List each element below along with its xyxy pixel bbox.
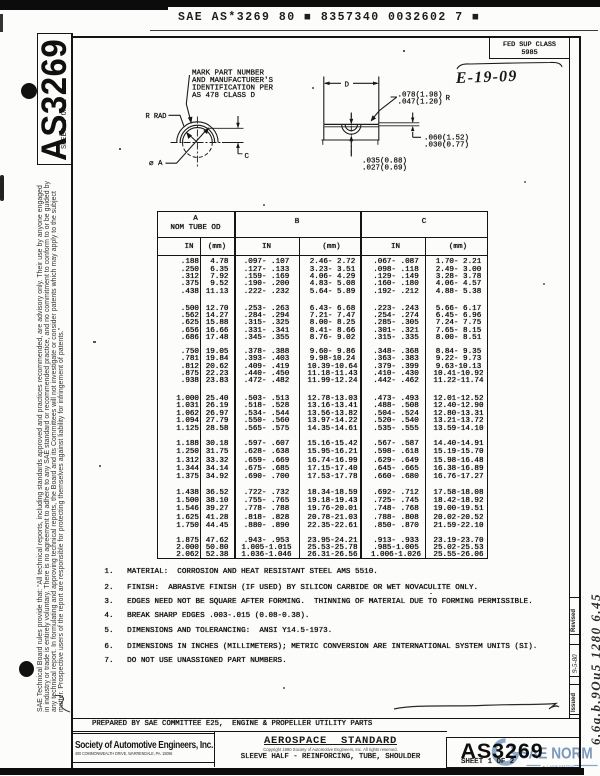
svg-text:R RAD: R RAD xyxy=(146,113,167,121)
svg-text:SAE NORM: SAE NORM xyxy=(520,746,593,763)
svg-text:D: D xyxy=(345,81,350,89)
svg-text:R: R xyxy=(446,95,451,103)
svg-text:.027(0.69): .027(0.69) xyxy=(362,165,407,173)
svg-text:⌀ A: ⌀ A xyxy=(149,160,163,168)
svg-text:.030(0.77): .030(0.77) xyxy=(424,142,469,150)
svg-text:▸ LANKSMTEK: ▸ LANKSMTEK xyxy=(543,764,575,769)
svg-text:.047(1.20): .047(1.20) xyxy=(398,99,443,107)
svg-text:C: C xyxy=(245,153,250,161)
svg-text:AS 478 CLASS D: AS 478 CLASS D xyxy=(192,92,256,100)
